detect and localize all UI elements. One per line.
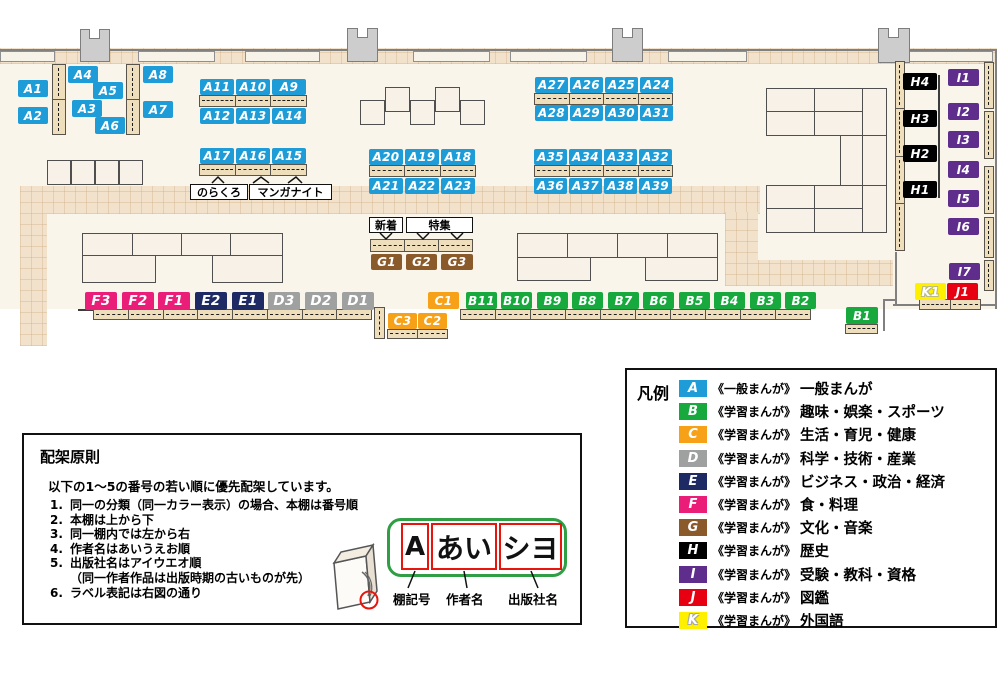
shelf-label: A10 — [236, 79, 270, 95]
legend-scope: 《学習まんが》 — [712, 612, 796, 629]
shelf-label: B3 — [750, 292, 781, 309]
shelf-label: I1 — [948, 69, 979, 86]
bookshelf — [370, 239, 473, 252]
bookshelf — [387, 329, 448, 339]
shelf-label: A7 — [143, 101, 173, 118]
wall-line — [883, 300, 885, 331]
shelf-label: B1 — [846, 307, 878, 324]
shelf-label: C1 — [428, 292, 459, 309]
table — [82, 233, 133, 256]
shelf-label: A32 — [639, 149, 672, 165]
wall-window — [413, 51, 490, 62]
shelf-label: A21 — [369, 178, 403, 194]
label-shelf-code-box: A — [401, 523, 429, 570]
shelf-label: I5 — [948, 190, 979, 207]
bookshelf — [93, 309, 372, 320]
shelf-label: A24 — [640, 77, 673, 93]
shelf-label: F3 — [85, 292, 117, 310]
shelf-label: B6 — [643, 292, 674, 309]
bookshelf — [984, 217, 994, 258]
table — [766, 88, 815, 112]
shelf-label: B4 — [714, 292, 745, 309]
shelf-label: B5 — [679, 292, 710, 309]
item-number: 6. — [50, 586, 70, 601]
shelf-label: B2 — [785, 292, 816, 309]
pillar — [80, 29, 110, 62]
item-text: 同一棚内では左から右 — [70, 527, 190, 542]
walkway — [725, 212, 758, 264]
bookshelf — [126, 64, 140, 135]
shelf-label: G2 — [406, 254, 437, 270]
table — [95, 160, 119, 185]
shelf-label: A36 — [534, 178, 567, 194]
table — [766, 111, 815, 136]
table — [814, 208, 863, 233]
shelf-label: A20 — [369, 149, 403, 165]
shelf-label: A13 — [236, 108, 270, 124]
principles-item: 4.作者名はあいうえお順 — [50, 542, 358, 557]
wall-window — [138, 51, 215, 62]
shelf-label: E2 — [195, 292, 227, 310]
table — [766, 208, 815, 233]
legend-scope: 《一般まんが》 — [712, 380, 796, 397]
table — [567, 233, 618, 258]
shelf-label: I6 — [948, 218, 979, 235]
shelf-label: I4 — [948, 161, 979, 178]
legend-panel: 凡例 A《一般まんが》一般まんが B《学習まんが》趣味・娯楽・スポーツ C《学習… — [625, 368, 997, 628]
wall-window — [245, 51, 320, 62]
legend-chip: H — [679, 542, 707, 559]
table — [766, 185, 815, 209]
shelf-label: A4 — [68, 66, 98, 83]
wall-window — [668, 51, 747, 62]
table — [385, 87, 410, 112]
legend-row: J《学習まんが》図鑑 — [679, 586, 945, 609]
shelf-label: A11 — [200, 79, 234, 95]
bookshelf — [460, 309, 811, 320]
shelf-label: A25 — [605, 77, 638, 93]
label-author-box: あい — [431, 523, 497, 570]
pillar — [878, 28, 910, 63]
shelf-label: J1 — [947, 283, 978, 300]
shelf-label: D2 — [305, 292, 337, 310]
shelf-label: A1 — [18, 80, 48, 97]
principles-item: 1.同一の分類（同一カラー表示）の場合、本棚は番号順 — [50, 498, 358, 513]
item-text: 作者名はあいうえお順 — [70, 542, 190, 557]
shelf-label: B11 — [466, 292, 497, 309]
table — [435, 87, 460, 112]
wall-window — [510, 51, 587, 62]
item-number — [50, 571, 70, 586]
table — [119, 160, 143, 185]
wall-window — [0, 51, 55, 62]
table — [517, 233, 568, 258]
legend-chip: B — [679, 403, 707, 420]
legend-chip: I — [679, 566, 707, 583]
pillar — [347, 28, 378, 62]
shelf-label: H3 — [903, 110, 937, 127]
item-text: 本棚は上から下 — [70, 513, 154, 528]
bookshelf — [374, 307, 385, 339]
bookshelf — [534, 165, 673, 177]
table — [410, 100, 435, 125]
wall-window — [903, 51, 993, 62]
shelf-label: A30 — [605, 105, 638, 121]
wall-line — [883, 299, 895, 301]
item-text: 出版社名はアイウエオ順 — [70, 556, 201, 571]
legend-title: 凡例 — [637, 380, 669, 404]
bookshelf — [199, 95, 307, 107]
legend-scope: 《学習まんが》 — [712, 403, 796, 420]
note-feature: 特集 — [406, 217, 473, 233]
legend-chip: A — [679, 380, 707, 397]
legend-chip: G — [679, 519, 707, 536]
shelf-label: I2 — [948, 103, 979, 120]
pillar — [612, 28, 643, 62]
table — [181, 233, 231, 256]
floor-map: A1 A2 A4 A5 A3 A6 A8 A7 A11 A10 A9 A12 A… — [0, 0, 1000, 700]
legend-category: 歴史 — [800, 540, 829, 561]
legend-chip: K — [679, 612, 707, 629]
legend-category: 科学・技術・産業 — [800, 448, 916, 469]
shelf-label: A2 — [18, 107, 48, 124]
legend-row: E《学習まんが》ビジネス・政治・経済 — [679, 470, 945, 493]
table — [667, 233, 718, 258]
shelf-label: D3 — [268, 292, 300, 310]
principles-item: （同一作者作品は出版時期の古いものが先） — [50, 571, 358, 586]
legend-scope: 《学習まんが》 — [712, 473, 796, 490]
legend-row: F《学習まんが》食・料理 — [679, 493, 945, 516]
note-norakuro: のらくろ — [190, 184, 248, 200]
shelf-label: A33 — [604, 149, 637, 165]
shelf-label: A27 — [535, 77, 568, 93]
table — [840, 135, 863, 186]
wall-line — [995, 49, 997, 309]
item-text: ラベル表記は右図の通り — [70, 586, 202, 601]
legend-row: H《学習まんが》歴史 — [679, 539, 945, 562]
label-publisher-box: シヨ — [499, 523, 562, 570]
item-text: 同一の分類（同一カラー表示）の場合、本棚は番号順 — [70, 498, 358, 513]
shelf-label: A34 — [569, 149, 602, 165]
legend-category: 食・料理 — [800, 494, 858, 515]
item-number: 5. — [50, 556, 70, 571]
shelf-label: A12 — [200, 108, 234, 124]
legend-row: I《学習まんが》受験・教科・資格 — [679, 563, 945, 586]
principles-item: 5.出版社名はアイウエオ順 — [50, 556, 358, 571]
legend-scope: 《学習まんが》 — [712, 542, 796, 559]
shelf-label: A26 — [570, 77, 603, 93]
bookshelf — [984, 62, 994, 109]
table — [862, 135, 887, 186]
shelf-label: A3 — [72, 100, 102, 117]
legend-scope: 《学習まんが》 — [712, 589, 796, 606]
legend-row: B《学習まんが》趣味・娯楽・スポーツ — [679, 400, 945, 423]
legend-scope: 《学習まんが》 — [712, 519, 796, 536]
shelf-label: A22 — [405, 178, 439, 194]
legend-chip: D — [679, 450, 707, 467]
legend-scope: 《学習まんが》 — [712, 496, 796, 513]
shelf-label: A29 — [570, 105, 603, 121]
shelf-label: I7 — [949, 263, 980, 280]
item-number: 3. — [50, 527, 70, 542]
table — [862, 185, 887, 233]
legend-chip: E — [679, 473, 707, 490]
shelf-label: A37 — [569, 178, 602, 194]
note-manga-night: マンガナイト — [249, 184, 332, 200]
shelf-label: D1 — [342, 292, 374, 310]
shelf-label: B10 — [501, 292, 532, 309]
table — [47, 160, 71, 185]
table — [71, 160, 95, 185]
table — [82, 255, 156, 283]
shelf-label: H2 — [903, 145, 937, 162]
walkway — [725, 260, 893, 286]
legend-category: 文化・音楽 — [800, 517, 873, 538]
shelf-label: G3 — [441, 254, 473, 270]
legend-row: K《学習まんが》外国語 — [679, 609, 945, 632]
legend-scope: 《学習まんが》 — [712, 426, 796, 443]
shelf-label: A14 — [272, 108, 306, 124]
shelf-label: A9 — [272, 79, 306, 95]
bookshelf — [919, 299, 981, 310]
legend-row: A《一般まんが》一般まんが — [679, 377, 945, 400]
bookshelf — [534, 93, 673, 105]
bookshelf — [845, 324, 878, 334]
bookshelf — [984, 260, 994, 291]
caption-publisher: 出版社名 — [508, 589, 558, 608]
legend-category: 一般まんが — [800, 378, 873, 399]
table — [814, 111, 863, 136]
legend-rows: A《一般まんが》一般まんが B《学習まんが》趣味・娯楽・スポーツ C《学習まんが… — [679, 377, 945, 632]
note-new-arrivals: 新着 — [369, 217, 403, 233]
legend-row: G《学習まんが》文化・音楽 — [679, 516, 945, 539]
bookshelf — [52, 64, 66, 135]
principles-intro: 以下の1～5の番号の若い順に優先配架しています。 — [48, 476, 339, 495]
shelf-label: A19 — [405, 149, 439, 165]
legend-scope: 《学習まんが》 — [712, 566, 796, 583]
shelf-label: A39 — [639, 178, 672, 194]
shelf-label: F1 — [158, 292, 190, 310]
principles-item: 3.同一棚内では左から右 — [50, 527, 358, 542]
principles-item: 2.本棚は上から下 — [50, 513, 358, 528]
shelf-label: A15 — [272, 148, 306, 164]
wall-line — [895, 252, 897, 305]
shelf-label: C2 — [418, 313, 447, 329]
legend-chip: F — [679, 496, 707, 513]
shelf-label: E1 — [232, 292, 264, 310]
table — [517, 257, 591, 281]
caption-shelf-code: 棚記号 — [393, 589, 431, 608]
table — [814, 88, 863, 112]
shelf-label: A8 — [143, 66, 173, 83]
item-number: 2. — [50, 513, 70, 528]
legend-category: 生活・育児・健康 — [800, 424, 916, 445]
shelf-label: A31 — [640, 105, 673, 121]
shelf-label: K1 — [915, 283, 946, 300]
shelf-label: B8 — [572, 292, 603, 309]
bookshelf — [984, 111, 994, 159]
legend-chip: J — [679, 589, 707, 606]
walkway — [20, 186, 47, 346]
legend-category: 趣味・娯楽・スポーツ — [800, 401, 945, 422]
table — [212, 255, 283, 283]
table — [814, 185, 863, 209]
item-text: （同一作者作品は出版時期の古いものが先） — [70, 571, 310, 586]
legend-category: 図鑑 — [800, 587, 829, 608]
shelf-label: I3 — [948, 131, 979, 148]
bookshelf — [199, 164, 307, 176]
shelf-label: A35 — [534, 149, 567, 165]
legend-chip: C — [679, 426, 707, 443]
principles-item: 6.ラベル表記は右図の通り — [50, 586, 358, 601]
shelf-label: A17 — [200, 148, 234, 164]
table — [617, 233, 668, 258]
shelf-label: A38 — [604, 178, 637, 194]
legend-scope: 《学習まんが》 — [712, 450, 796, 467]
principles-title: 配架原則 — [40, 446, 100, 467]
legend-row: D《学習まんが》科学・技術・産業 — [679, 447, 945, 470]
shelf-label: A5 — [93, 82, 123, 99]
shelf-label: A16 — [236, 148, 270, 164]
legend-row: C《学習まんが》生活・育児・健康 — [679, 423, 945, 446]
shelf-label: H1 — [903, 181, 937, 198]
shelf-label: B9 — [537, 292, 568, 309]
shelf-label: H4 — [903, 73, 937, 90]
shelf-label: C3 — [388, 313, 417, 329]
caption-author: 作者名 — [446, 589, 484, 608]
shelf-label: A6 — [95, 117, 125, 134]
legend-category: ビジネス・政治・経済 — [800, 471, 945, 492]
table — [360, 100, 385, 125]
legend-category: 受験・教科・資格 — [800, 564, 916, 585]
table — [230, 233, 283, 256]
table — [460, 100, 485, 125]
item-number: 1. — [50, 498, 70, 513]
shelf-label: A23 — [441, 178, 475, 194]
shelf-label: F2 — [122, 292, 154, 310]
shelf-label: B7 — [608, 292, 639, 309]
shelf-label: G1 — [371, 254, 402, 270]
principles-list: 1.同一の分類（同一カラー表示）の場合、本棚は番号順 2.本棚は上から下 3.同… — [50, 498, 358, 600]
bookshelf — [984, 166, 994, 214]
wall-line — [938, 75, 940, 198]
legend-category: 外国語 — [800, 610, 844, 631]
shelf-label: A18 — [441, 149, 475, 165]
item-number: 4. — [50, 542, 70, 557]
table — [645, 257, 718, 281]
bookshelf — [369, 165, 476, 177]
table — [132, 233, 182, 256]
shelf-label: A28 — [535, 105, 568, 121]
table — [862, 88, 887, 136]
